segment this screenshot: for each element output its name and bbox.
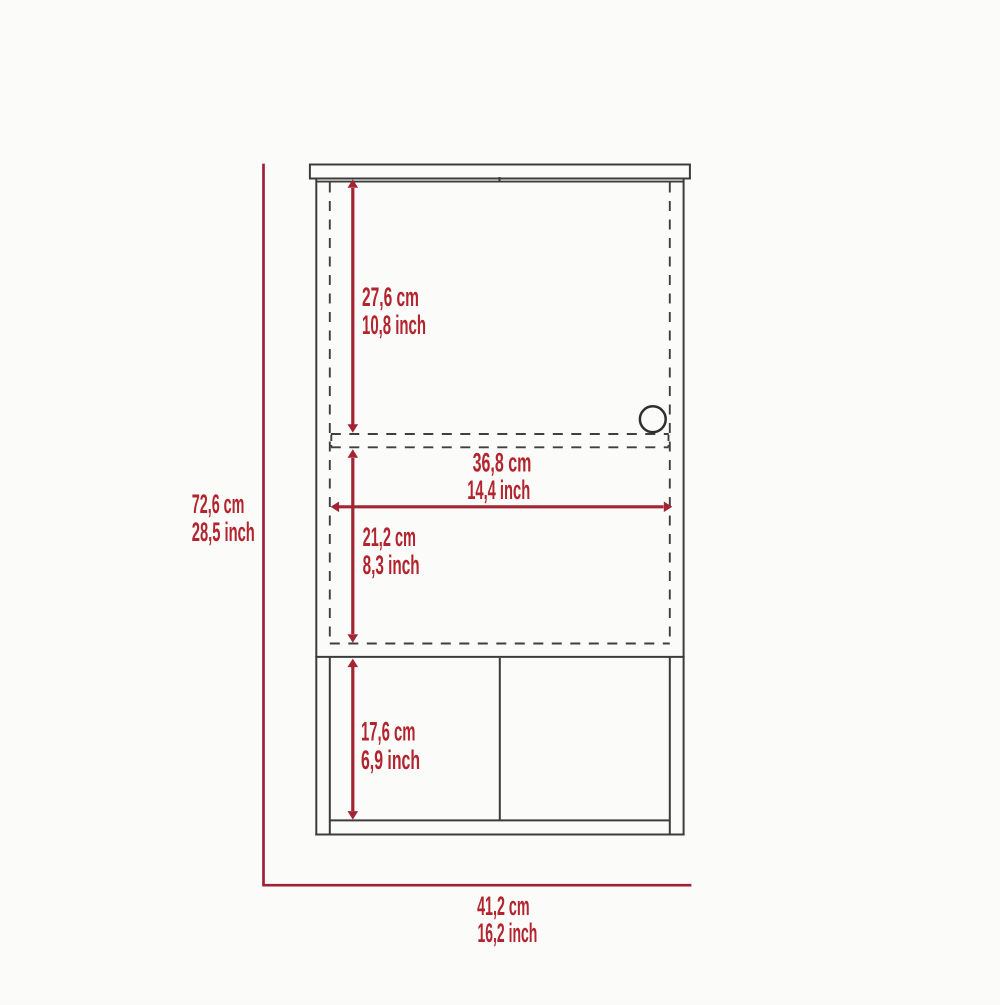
svg-text:21,2 cm: 21,2 cm xyxy=(363,522,416,552)
svg-text:36,8 cm: 36,8 cm xyxy=(473,447,532,477)
svg-text:14,4 inch: 14,4 inch xyxy=(467,475,530,505)
svg-text:6,9 inch: 6,9 inch xyxy=(361,745,420,775)
svg-text:72,6 cm: 72,6 cm xyxy=(192,489,245,519)
svg-text:27,6 cm: 27,6 cm xyxy=(362,282,419,312)
svg-text:10,8 inch: 10,8 inch xyxy=(362,310,426,340)
svg-text:17,6 cm: 17,6 cm xyxy=(361,716,416,746)
svg-text:8,3 inch: 8,3 inch xyxy=(363,550,420,580)
svg-text:28,5 inch: 28,5 inch xyxy=(192,517,255,547)
svg-text:41,2 cm: 41,2 cm xyxy=(477,891,529,921)
svg-text:16,2 inch: 16,2 inch xyxy=(478,918,538,948)
